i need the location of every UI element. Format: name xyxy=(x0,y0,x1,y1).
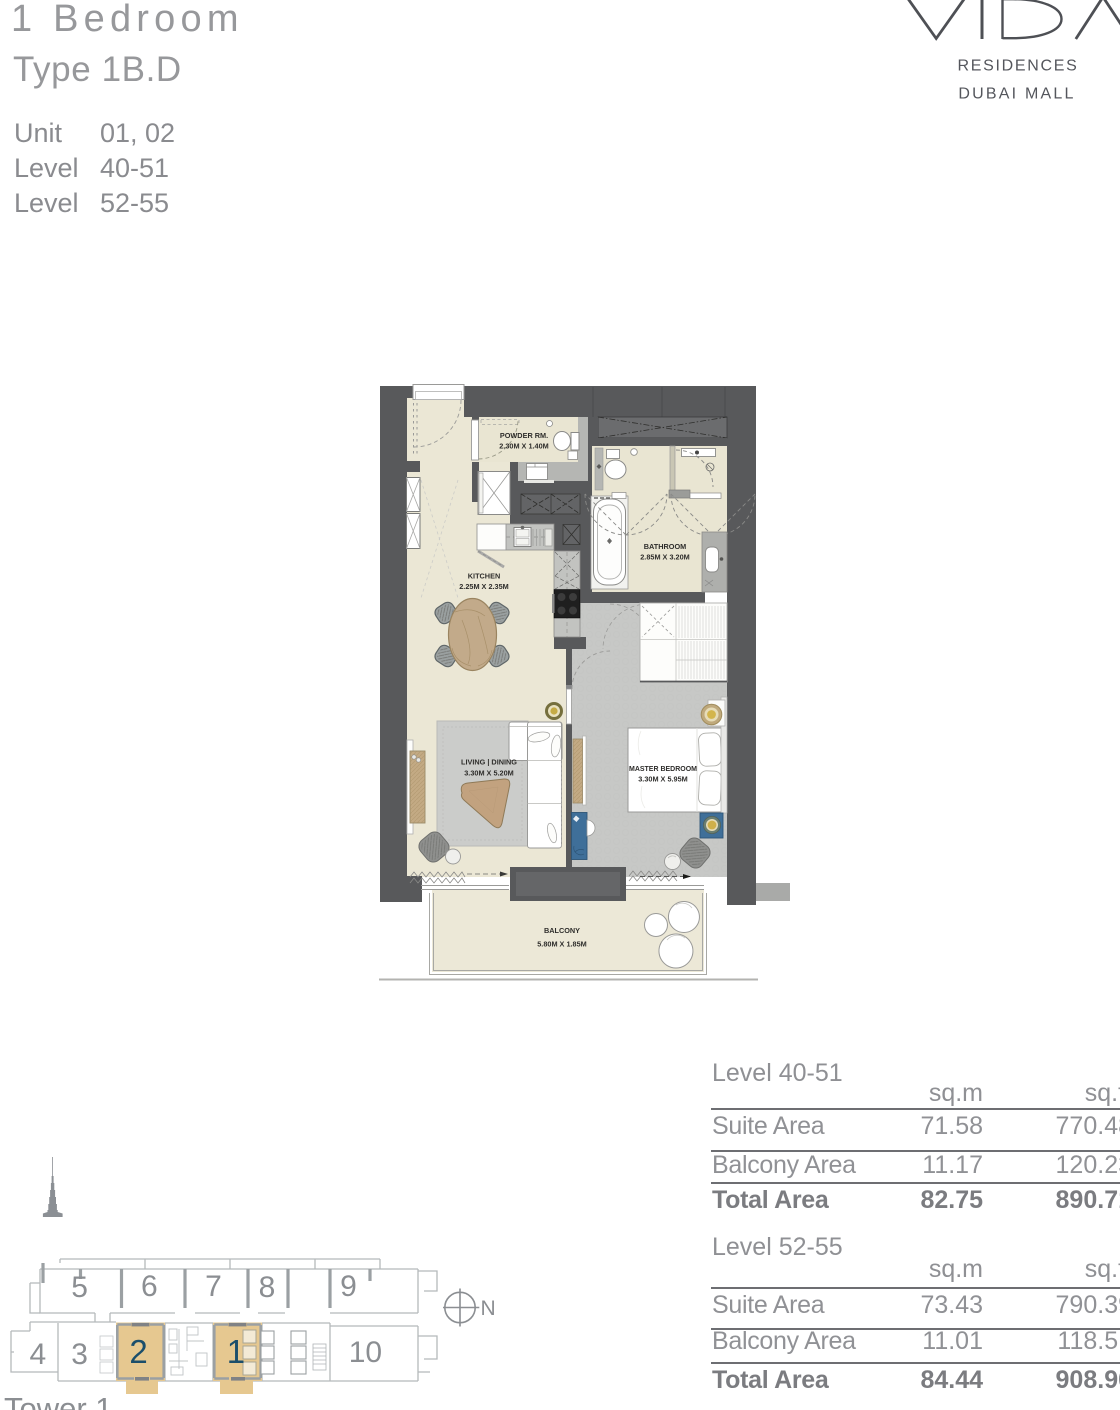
svg-text:KITCHEN: KITCHEN xyxy=(468,572,500,581)
svg-text:2.25M X 2.35M: 2.25M X 2.35M xyxy=(459,582,508,591)
svg-text:3.30M X 5.95M: 3.30M X 5.95M xyxy=(638,775,687,784)
svg-text:8: 8 xyxy=(259,1271,276,1304)
svg-text:5.80M X 1.85M: 5.80M X 1.85M xyxy=(537,940,586,949)
svg-text:3: 3 xyxy=(71,1338,88,1371)
svg-text:RESIDENCES: RESIDENCES xyxy=(957,58,1078,75)
svg-text:N: N xyxy=(481,1297,496,1320)
svg-text:2: 2 xyxy=(129,1333,147,1370)
svg-text:BATHROOM: BATHROOM xyxy=(644,542,686,551)
svg-text:BALCONY: BALCONY xyxy=(544,926,580,935)
svg-text:7: 7 xyxy=(205,1270,222,1303)
svg-text:10: 10 xyxy=(349,1336,382,1369)
svg-text:DUBAI MALL: DUBAI MALL xyxy=(958,86,1075,103)
svg-text:2.85M X 3.20M: 2.85M X 3.20M xyxy=(640,553,689,562)
svg-text:3.30M X 5.20M: 3.30M X 5.20M xyxy=(464,769,513,778)
svg-text:5: 5 xyxy=(71,1271,88,1304)
svg-text:2.30M X 1.40M: 2.30M X 1.40M xyxy=(499,442,548,451)
svg-text:MASTER BEDROOM: MASTER BEDROOM xyxy=(629,764,697,773)
svg-text:4: 4 xyxy=(30,1338,47,1371)
svg-text:POWDER RM.: POWDER RM. xyxy=(500,431,548,440)
svg-text:LIVING | DINING: LIVING | DINING xyxy=(461,758,517,767)
svg-text:9: 9 xyxy=(340,1270,357,1303)
svg-text:6: 6 xyxy=(141,1270,158,1303)
svg-text:1: 1 xyxy=(227,1333,245,1370)
